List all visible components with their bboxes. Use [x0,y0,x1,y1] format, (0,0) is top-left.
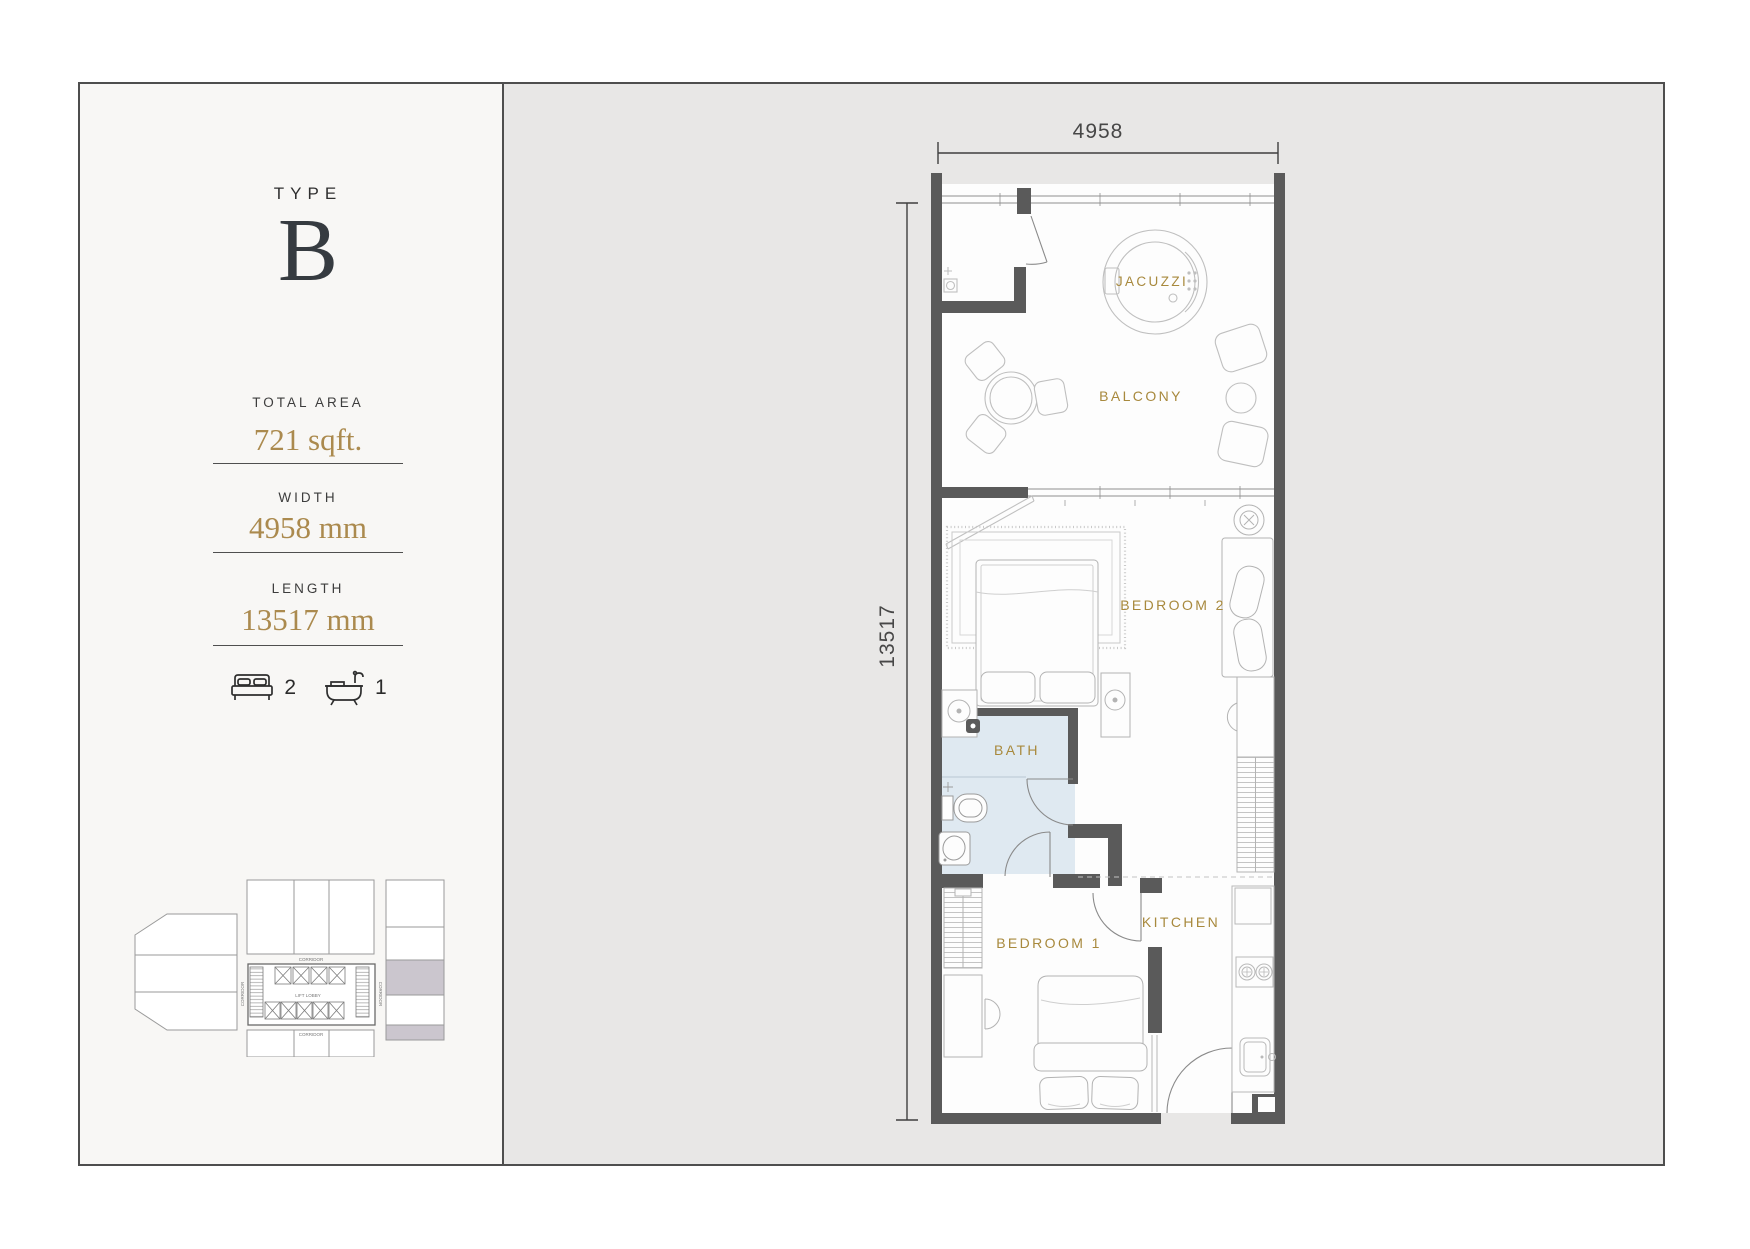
room-label-jacuzzi: JACUZZI [1082,274,1222,289]
width-label: WIDTH [106,490,510,505]
bed-bath-summary: 2 1 [106,669,510,707]
bed1 [1038,976,1143,1045]
room-label-kitchen: KITCHEN [1111,914,1251,930]
balcony-side-table [1226,383,1256,413]
room-label-bath: BATH [967,742,1067,758]
highlighted-unit [386,960,444,995]
pillow [1039,1076,1088,1110]
highlighted-unit [386,1025,444,1040]
dimension-width: 4958 [1048,120,1148,144]
pillow [1040,672,1095,703]
floor-plan [780,100,1310,1140]
room-label-bedroom1: BEDROOM 1 [969,935,1129,951]
total-area-label: TOTAL AREA [106,395,510,410]
pillow [1091,1076,1138,1110]
keyplan-corridor-top: CORRIDOR [299,957,324,962]
divider-rule [213,645,403,646]
divider-rule [213,552,403,553]
bed-icon [229,672,275,704]
type-value: B [106,206,510,296]
length-value: 13517 mm [106,602,510,638]
room-label-balcony: BALCONY [1071,388,1211,404]
keyplan-corridor-bottom: CORRIDOR [299,1032,324,1037]
desk [944,975,982,1057]
baths-count: 1 [375,676,387,700]
keyplan-core: CORRIDOR LIFT LOBBY CORRIDOR CORRIDOR CO… [240,957,383,1037]
total-area-value: 721 sqft. [106,422,510,458]
length-label: LENGTH [106,581,510,596]
wall-notch [1258,1097,1275,1112]
blanket [1034,1043,1147,1071]
divider-rule [213,463,403,464]
keyplan-corridor-right: CORRIDOR [378,982,383,1007]
room-label-bedroom2: BEDROOM 2 [1093,597,1253,613]
balcony-table [985,372,1037,424]
keyplan-corridor-left: CORRIDOR [240,981,245,1006]
desk [1237,677,1274,757]
unit-info-panel: TYPE B TOTAL AREA 721 sqft. WIDTH 4958 m… [80,84,504,1164]
bathtub-icon [322,669,366,707]
key-plan: CORRIDOR LIFT LOBBY CORRIDOR CORRIDOR CO… [122,787,447,1057]
toilet-tank [942,796,953,820]
dimension-length: 13517 [876,586,900,686]
bedrooms-count: 2 [284,676,296,700]
stairs [356,967,369,1017]
pillow [981,672,1035,703]
width-value: 4958 mm [106,510,510,546]
brochure-page: TYPE B TOTAL AREA 721 sqft. WIDTH 4958 m… [0,0,1750,1249]
keyplan-lift-lobby: LIFT LOBBY [295,993,320,998]
stairs [250,967,263,1017]
